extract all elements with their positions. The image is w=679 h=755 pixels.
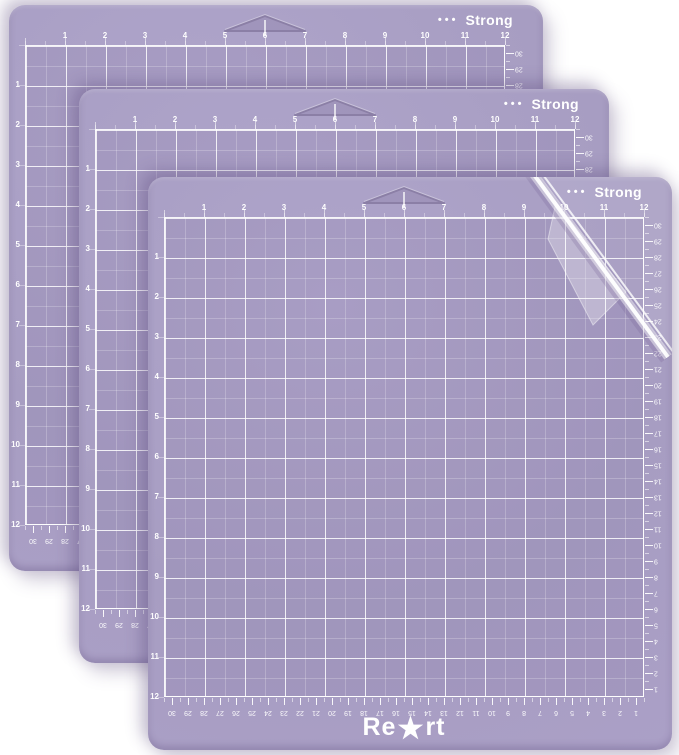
cm-number: 28 <box>585 166 593 173</box>
inch-number: 12 <box>571 116 580 124</box>
inch-number: 11 <box>531 116 539 124</box>
cm-number: 15 <box>654 462 662 469</box>
inch-number: 1 <box>16 81 20 89</box>
inch-number: 2 <box>173 116 177 124</box>
inch-number: 7 <box>155 493 159 501</box>
inch-number: 1 <box>155 253 159 261</box>
inch-number: 3 <box>143 32 147 40</box>
inch-number: 1 <box>133 116 137 124</box>
star-icon: ★ <box>397 713 424 745</box>
cm-number: 30 <box>515 50 523 57</box>
inch-number: 12 <box>501 32 510 40</box>
cm-number: 30 <box>99 621 107 628</box>
inch-number: 2 <box>86 205 90 213</box>
inch-number: 7 <box>86 405 90 413</box>
inch-number: 4 <box>155 373 159 381</box>
inch-number: 11 <box>12 481 20 489</box>
inch-number: 3 <box>282 204 286 212</box>
cm-number: 30 <box>29 537 37 544</box>
logo-text-right: rt <box>425 713 445 741</box>
cm-number: 28 <box>61 537 69 544</box>
strong-label: Strong <box>531 97 579 111</box>
inch-number: 2 <box>155 293 159 301</box>
strong-dots: ••• <box>504 99 525 110</box>
cm-number: 5 <box>654 622 658 629</box>
inch-number: 8 <box>155 533 159 541</box>
cm-number: 12 <box>654 510 662 517</box>
inch-number: 3 <box>213 116 217 124</box>
cm-number: 30 <box>585 134 593 141</box>
inch-number: 10 <box>421 32 430 40</box>
triangle-notch-icon <box>220 10 310 36</box>
strong-badge: ••• Strong <box>438 13 513 27</box>
cm-number: 9 <box>654 558 658 565</box>
cm-number: 11 <box>654 526 661 533</box>
inch-number: 4 <box>253 116 257 124</box>
cm-number: 2 <box>654 670 658 677</box>
inch-number: 8 <box>16 361 20 369</box>
inch-number: 4 <box>322 204 326 212</box>
peeled-film-corner <box>462 177 672 377</box>
cm-number: 13 <box>654 494 662 501</box>
triangle-notch-icon <box>290 94 380 120</box>
cm-number: 29 <box>515 66 523 73</box>
inch-number: 11 <box>82 565 90 573</box>
product-image-stage: ••• Strong 123456789101112 1234567891011… <box>0 0 679 755</box>
inch-number: 3 <box>86 245 90 253</box>
inch-number: 6 <box>86 365 90 373</box>
cm-number: 17 <box>654 430 662 437</box>
inch-number: 2 <box>242 204 246 212</box>
cm-number: 7 <box>654 590 658 597</box>
tick-marks-bottom-minor <box>164 698 645 702</box>
inch-number: 10 <box>491 116 500 124</box>
inch-number: 6 <box>16 281 20 289</box>
inch-number: 10 <box>11 441 20 449</box>
inch-number: 9 <box>155 573 159 581</box>
inch-number: 8 <box>86 445 90 453</box>
tick-marks-top-major <box>25 38 506 45</box>
inch-number: 9 <box>16 401 20 409</box>
inch-number: 5 <box>16 241 20 249</box>
cm-number: 18 <box>654 414 662 421</box>
cm-number: 6 <box>654 606 658 613</box>
inch-number: 3 <box>155 333 159 341</box>
tick-marks-top-major <box>95 122 576 129</box>
cm-number: 28 <box>515 82 523 89</box>
inch-number: 9 <box>86 485 90 493</box>
cm-number: 29 <box>585 150 593 157</box>
triangle-notch-icon <box>359 182 449 208</box>
inch-number: 11 <box>151 653 159 661</box>
inch-number: 10 <box>150 613 159 621</box>
inch-number: 12 <box>11 521 20 529</box>
inch-number: 4 <box>86 285 90 293</box>
cm-number: 4 <box>654 638 658 645</box>
cm-number: 29 <box>115 621 123 628</box>
inch-number: 9 <box>383 32 387 40</box>
cm-number: 14 <box>654 478 662 485</box>
cm-number: 8 <box>654 574 658 581</box>
strong-badge: ••• Strong <box>504 97 579 111</box>
inch-number: 9 <box>453 116 457 124</box>
inch-number: 7 <box>16 321 20 329</box>
strong-label: Strong <box>465 13 513 27</box>
strong-dots: ••• <box>438 15 459 26</box>
inch-number: 4 <box>16 201 20 209</box>
cm-number: 29 <box>45 537 53 544</box>
inch-number: 1 <box>202 204 206 212</box>
inch-number: 4 <box>183 32 187 40</box>
cm-number: 3 <box>654 654 658 661</box>
inch-number: 12 <box>81 605 90 613</box>
tick-marks-bottom-major <box>172 698 638 705</box>
inch-number: 10 <box>81 525 90 533</box>
inch-number: 11 <box>461 32 469 40</box>
inch-number: 1 <box>63 32 67 40</box>
brand-logo: Re★rt <box>164 715 644 744</box>
cm-number: 20 <box>654 382 662 389</box>
inch-number: 1 <box>86 165 90 173</box>
cm-number: 10 <box>654 542 662 549</box>
cutting-mat-front: ••• Strong 123456789101112 1234567891011… <box>148 177 672 750</box>
inch-number: 5 <box>155 413 159 421</box>
inch-number: 3 <box>16 161 20 169</box>
cm-number: 28 <box>131 621 139 628</box>
inch-number: 6 <box>155 453 159 461</box>
inch-number: 2 <box>103 32 107 40</box>
cm-number: 1 <box>654 686 658 693</box>
inch-number: 8 <box>413 116 417 124</box>
cm-number: 19 <box>654 398 662 405</box>
logo-text-left: Re <box>362 713 396 741</box>
inch-number: 5 <box>86 325 90 333</box>
inch-number: 2 <box>16 121 20 129</box>
inch-number: 12 <box>150 693 159 701</box>
cm-number: 16 <box>654 446 662 453</box>
inch-number: 8 <box>343 32 347 40</box>
